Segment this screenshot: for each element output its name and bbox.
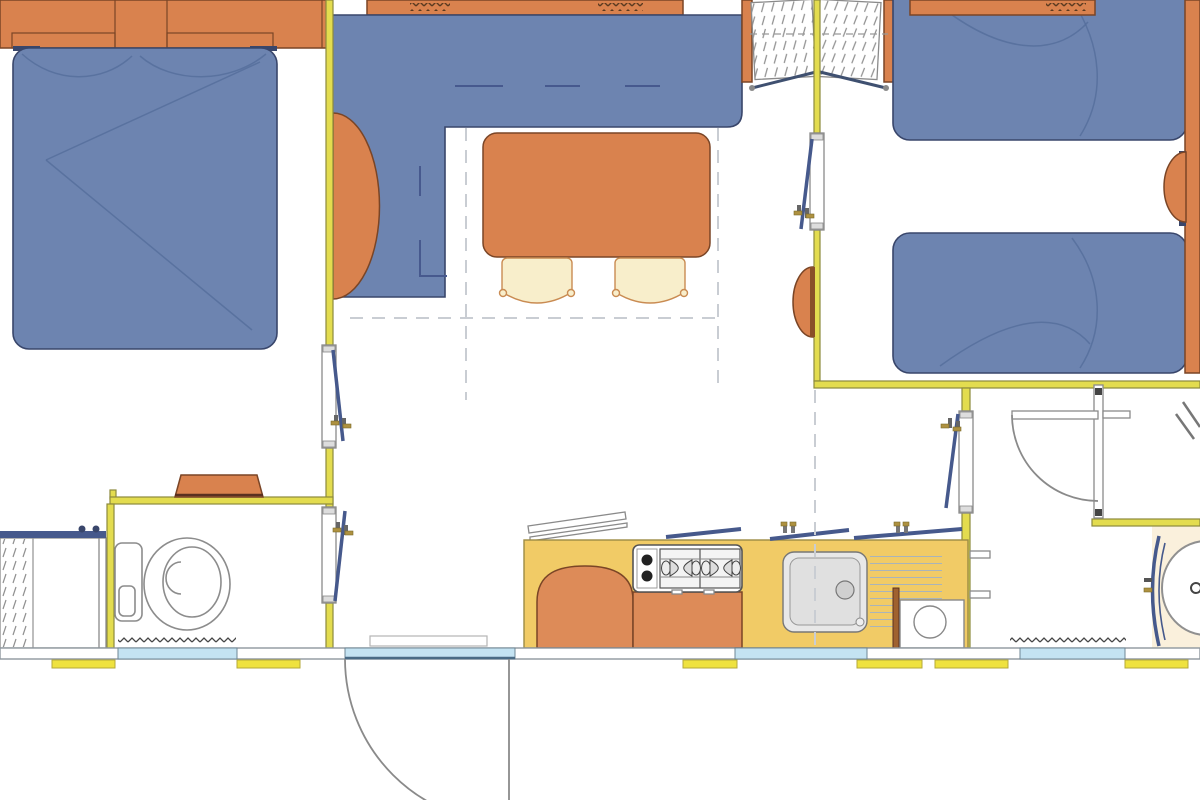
dining-table <box>483 133 710 257</box>
hob-knob <box>642 571 653 582</box>
fridge <box>537 566 633 648</box>
doormat <box>118 636 236 644</box>
gas-hob <box>633 545 742 594</box>
fold-table <box>1164 152 1186 222</box>
wall-bracket <box>970 591 990 598</box>
burner <box>692 561 701 575</box>
single-bed <box>893 233 1187 373</box>
headboard-shelf <box>1185 0 1200 373</box>
living-area <box>332 0 742 303</box>
doormat <box>1010 636 1126 644</box>
door-swing-arc <box>1012 415 1098 501</box>
window-sill <box>935 660 1008 668</box>
floor-plan-stage <box>0 0 1200 800</box>
burner <box>702 561 711 575</box>
chair <box>500 258 575 303</box>
window <box>1020 648 1125 659</box>
window <box>735 648 867 659</box>
hob-knob <box>642 555 653 566</box>
overhead-cabinets <box>0 0 330 48</box>
appliance <box>900 600 964 648</box>
shower-cabin <box>0 526 106 649</box>
shower-glass-door <box>1 539 32 647</box>
window-frame <box>322 507 336 603</box>
rail-knob <box>93 526 100 533</box>
entrance-door-swing <box>345 659 509 800</box>
window-sill <box>52 660 115 668</box>
shower-drain <box>1191 583 1200 593</box>
window <box>118 648 237 659</box>
wc-shelf <box>175 475 263 497</box>
door-frame <box>1094 385 1103 518</box>
wc-wall <box>110 497 333 504</box>
floor-plan-svg <box>0 0 1200 800</box>
window-sill <box>857 660 922 668</box>
hob-cabinet <box>633 592 742 648</box>
shelf-squiggle <box>410 3 450 11</box>
burner <box>662 561 671 575</box>
shower-rail <box>0 531 106 538</box>
kitchen <box>524 512 990 648</box>
interior-door-leaf <box>1012 411 1098 419</box>
window-sill <box>683 660 737 668</box>
window-frame <box>959 411 973 513</box>
window-sill <box>237 660 300 668</box>
shelf-squiggle <box>598 3 643 11</box>
master-bedroom <box>0 0 330 349</box>
twin-bedroom <box>893 0 1200 373</box>
burner <box>732 561 741 575</box>
window-sill <box>1125 660 1188 668</box>
twin-room-wall <box>814 381 1200 388</box>
wardrobe-side <box>742 0 752 82</box>
shelf-squiggle <box>1046 3 1086 11</box>
drain <box>836 581 854 599</box>
entrance-step <box>370 636 487 646</box>
exterior-wall <box>0 636 1200 800</box>
single-bed <box>893 0 1187 140</box>
double-bed <box>13 48 277 349</box>
wall-bracket <box>970 551 990 558</box>
rail-knob <box>79 526 86 533</box>
toilet <box>115 538 230 630</box>
towel-rail <box>893 588 899 648</box>
wall-stub <box>1103 411 1130 418</box>
corner-fitting <box>1183 402 1200 427</box>
sink <box>783 552 867 632</box>
bathroom-wall <box>1092 519 1200 526</box>
door-handle <box>749 85 755 91</box>
chair <box>613 258 688 303</box>
door-handle <box>883 85 889 91</box>
wall-side-table-edge <box>810 267 815 337</box>
corner-fitting <box>1176 414 1194 439</box>
